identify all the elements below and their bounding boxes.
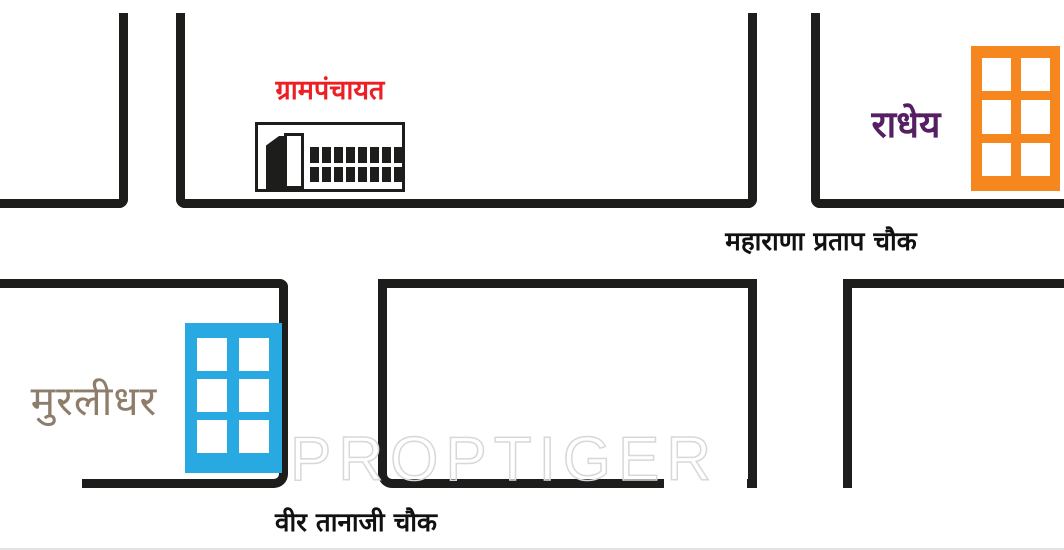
murlidhar-building-icon <box>185 323 282 473</box>
window-pane <box>382 147 391 163</box>
window-pane <box>346 167 355 183</box>
window-pane <box>982 58 1011 91</box>
veer-tanaji-chowk-label: वीर तानाजी चौक <box>248 503 464 539</box>
window-pane <box>394 167 403 183</box>
window-pane <box>394 147 403 163</box>
window-pane <box>197 420 227 453</box>
road-gap-patch <box>0 472 82 492</box>
window-pane <box>370 147 379 163</box>
window-pane <box>197 379 227 412</box>
radhey-label: राधेय <box>850 97 962 148</box>
gram-panchayat-label: ग्रामपंचायत <box>230 70 430 107</box>
window-pane <box>1021 100 1050 133</box>
door-icon <box>266 136 286 189</box>
door-frame-icon <box>284 133 304 189</box>
window-pane <box>982 100 1011 133</box>
road-top-left-corner <box>0 13 128 208</box>
gram-panchayat-building-icon <box>255 122 405 192</box>
proptiger-watermark: PROPTIGER <box>290 424 718 495</box>
window-pane <box>982 143 1011 176</box>
road-bottom-right-block <box>843 279 1064 488</box>
window-grid <box>197 338 269 453</box>
window-pane <box>334 167 343 183</box>
window-pane <box>1021 143 1050 176</box>
window-pane <box>197 338 227 371</box>
window-pane <box>239 338 269 371</box>
maharana-pratap-chowk-label: महाराणा प्रताप चौक <box>690 222 952 258</box>
window-grid <box>310 147 403 182</box>
window-pane <box>382 167 391 183</box>
window-grid <box>982 58 1050 176</box>
window-pane <box>310 147 319 163</box>
window-pane <box>358 147 367 163</box>
radhey-building-icon <box>971 46 1060 191</box>
window-pane <box>322 147 331 163</box>
murlidhar-label: मुरलीधर <box>4 372 184 428</box>
window-pane <box>322 167 331 183</box>
window-pane <box>239 420 269 453</box>
window-pane <box>334 147 343 163</box>
window-pane <box>1021 58 1050 91</box>
site-location-map: PROPTIGER ग्रामपंचायत राधेय मुरलीधर महार… <box>0 0 1064 550</box>
window-pane <box>310 167 319 183</box>
window-pane <box>370 167 379 183</box>
window-pane <box>358 167 367 183</box>
window-pane <box>239 379 269 412</box>
window-pane <box>346 147 355 163</box>
